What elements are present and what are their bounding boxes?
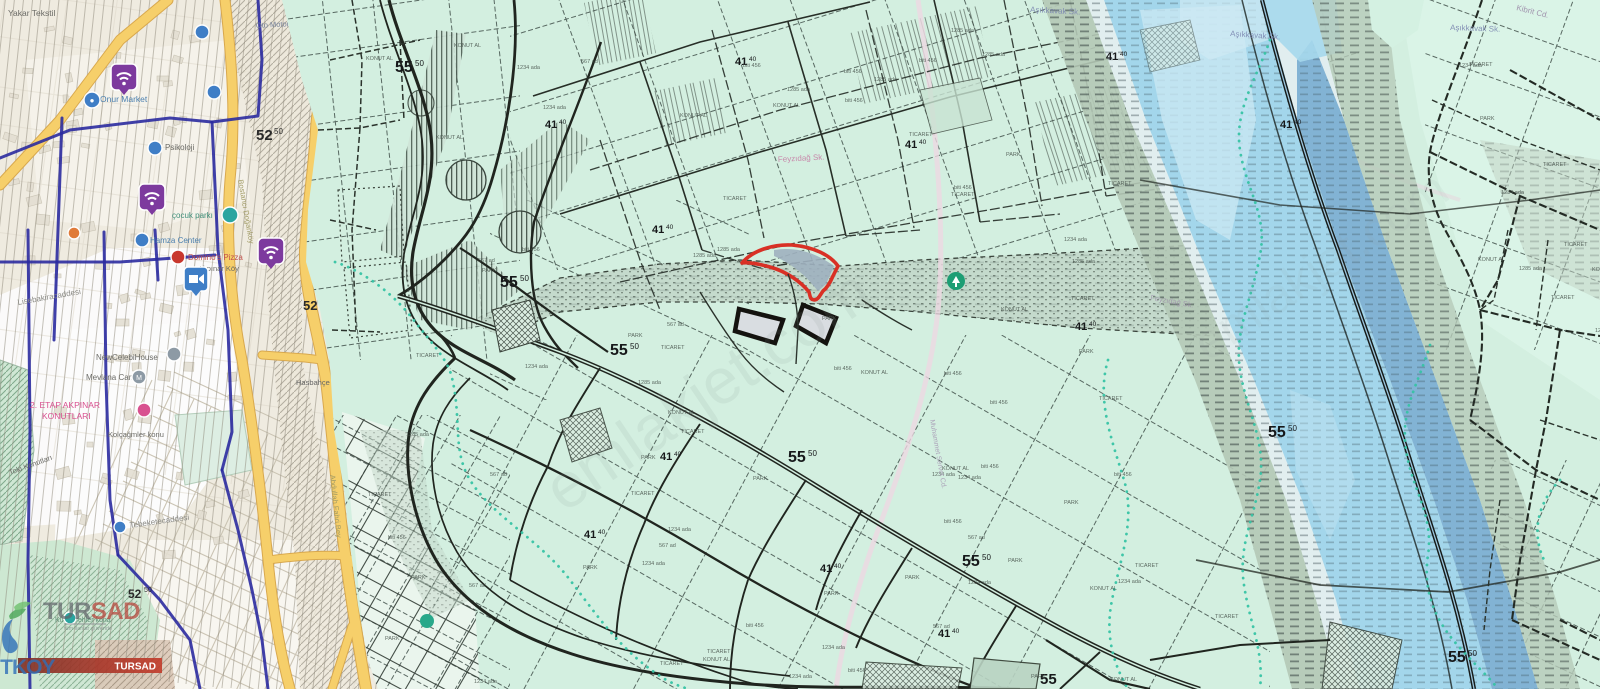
svg-text:TICARET: TICARET xyxy=(1543,162,1567,168)
svg-text:Aşıkkavak Sk.: Aşıkkavak Sk. xyxy=(1450,23,1501,34)
svg-text:çocuk parkı: çocuk parkı xyxy=(172,211,213,220)
svg-text:50: 50 xyxy=(415,59,424,68)
svg-text:PARK: PARK xyxy=(1008,558,1023,564)
svg-text:biti 456: biti 456 xyxy=(845,98,863,104)
svg-text:PARK: PARK xyxy=(824,591,839,597)
svg-text:40: 40 xyxy=(598,529,606,536)
svg-text:1285 ada: 1285 ada xyxy=(874,77,898,83)
svg-text:567 ad: 567 ad xyxy=(667,322,684,328)
svg-text:PARK: PARK xyxy=(1480,116,1495,122)
svg-text:40: 40 xyxy=(666,224,674,231)
svg-text:Domino's Pizza: Domino's Pizza xyxy=(188,253,243,262)
svg-text:biti 456: biti 456 xyxy=(1114,472,1132,478)
svg-text:KONUT AL: KONUT AL xyxy=(773,103,800,109)
svg-text:41: 41 xyxy=(820,563,832,575)
svg-text:1285 ada: 1285 ada xyxy=(406,432,430,438)
svg-text:1234 ada: 1234 ada xyxy=(1118,579,1142,585)
svg-text:1285 ada: 1285 ada xyxy=(982,52,1006,58)
svg-text:KONUT AL: KONUT AL xyxy=(1110,677,1137,683)
svg-text:biti 456: biti 456 xyxy=(522,247,540,253)
svg-text:1234 ada: 1234 ada xyxy=(642,561,666,567)
svg-text:41: 41 xyxy=(905,139,917,151)
svg-text:40: 40 xyxy=(1120,51,1128,58)
svg-text:1234 ada: 1234 ada xyxy=(968,580,992,586)
svg-text:1285 ada: 1285 ada xyxy=(717,247,741,253)
svg-text:52: 52 xyxy=(303,298,317,313)
svg-text:1285 ada: 1285 ada xyxy=(1519,266,1543,272)
svg-text:40: 40 xyxy=(1089,321,1097,328)
svg-text:TICARET: TICARET xyxy=(1099,396,1123,402)
svg-text:1285 ada: 1285 ada xyxy=(1595,328,1600,334)
svg-text:1285 ada: 1285 ada xyxy=(951,28,975,34)
svg-text:1234 ada: 1234 ada xyxy=(822,645,846,651)
svg-text:40: 40 xyxy=(559,119,567,126)
svg-text:UTKOY: UTKOY xyxy=(0,656,55,679)
svg-text:1234 ada: 1234 ada xyxy=(474,679,498,685)
svg-text:KONUT AL: KONUT AL xyxy=(942,466,969,472)
svg-text:50: 50 xyxy=(1288,424,1297,433)
svg-text:41: 41 xyxy=(1075,321,1087,333)
svg-text:55: 55 xyxy=(500,274,518,291)
svg-text:PARK: PARK xyxy=(753,476,768,482)
svg-text:Hamza Center: Hamza Center xyxy=(150,236,202,245)
svg-text:KONUTLARI: KONUTLARI xyxy=(42,411,91,421)
svg-text:1234 ada: 1234 ada xyxy=(543,105,567,111)
svg-text:PARK: PARK xyxy=(385,636,400,642)
svg-text:PARK: PARK xyxy=(411,575,426,581)
svg-text:1285 ada: 1285 ada xyxy=(1072,259,1096,265)
svg-text:biti 456: biti 456 xyxy=(848,668,866,674)
svg-text:TICARET: TICARET xyxy=(1071,296,1095,302)
svg-text:TICARET: TICARET xyxy=(660,661,684,667)
svg-text:55: 55 xyxy=(788,449,806,466)
svg-text:55: 55 xyxy=(610,342,628,359)
svg-text:567 ad: 567 ad xyxy=(469,583,486,589)
svg-text:1234 ada: 1234 ada xyxy=(789,674,813,680)
svg-text:TICARET: TICARET xyxy=(416,353,440,359)
svg-text:M: M xyxy=(136,375,142,382)
svg-text:Psikoloji: Psikoloji xyxy=(165,143,195,152)
svg-text:1234 ada: 1234 ada xyxy=(1064,237,1088,243)
svg-text:tüm ilanlar güvende: tüm ilanlar güvende xyxy=(64,626,112,632)
svg-text:biti 456: biti 456 xyxy=(990,400,1008,406)
svg-text:KONUT AL: KONUT AL xyxy=(1592,267,1600,273)
svg-text:KONUT AL: KONUT AL xyxy=(436,135,463,141)
svg-text:PARK: PARK xyxy=(905,575,920,581)
svg-text:PARK: PARK xyxy=(1031,674,1046,680)
svg-text:1234 ada: 1234 ada xyxy=(958,475,982,481)
svg-text:biti 456: biti 456 xyxy=(944,371,962,377)
svg-text:TICARET: TICARET xyxy=(1108,181,1132,187)
svg-text:TICARET: TICARET xyxy=(1564,242,1588,248)
svg-text:40: 40 xyxy=(749,56,757,63)
svg-text:50: 50 xyxy=(1468,649,1477,658)
svg-text:40: 40 xyxy=(919,139,927,146)
svg-text:TICARET: TICARET xyxy=(661,345,685,351)
svg-text:41: 41 xyxy=(545,119,557,131)
svg-text:TURSAD: TURSAD xyxy=(114,662,156,673)
svg-text:TICARET: TICARET xyxy=(723,196,747,202)
svg-text:55: 55 xyxy=(962,553,980,570)
svg-text:TICARET: TICARET xyxy=(1215,614,1239,620)
svg-text:biti 456: biti 456 xyxy=(944,519,962,525)
svg-text:1234 ada: 1234 ada xyxy=(1501,190,1525,196)
svg-text:55: 55 xyxy=(1448,649,1466,666)
svg-text:41: 41 xyxy=(1106,51,1118,63)
svg-text:2. ETAP AKPINAR: 2. ETAP AKPINAR xyxy=(30,400,100,410)
svg-text:PARK: PARK xyxy=(583,565,598,571)
svg-text:567 ad: 567 ad xyxy=(490,472,507,478)
svg-text:41: 41 xyxy=(584,529,596,541)
svg-text:567 ad: 567 ad xyxy=(968,535,985,541)
svg-text:Yakar Tekstil: Yakar Tekstil xyxy=(8,8,56,18)
svg-text:Kolçağmler konu: Kolçağmler konu xyxy=(108,430,164,439)
svg-text:PARK: PARK xyxy=(1079,349,1094,355)
svg-text:41: 41 xyxy=(1280,119,1292,131)
svg-text:50: 50 xyxy=(144,587,152,594)
svg-text:KONUT AL: KONUT AL xyxy=(454,43,481,49)
svg-text:1234 ada: 1234 ada xyxy=(517,65,541,71)
svg-text:1234 ada: 1234 ada xyxy=(1459,63,1483,69)
svg-text:KONUT AL: KONUT AL xyxy=(1478,257,1505,263)
svg-text:NewCelebiHouse: NewCelebiHouse xyxy=(96,353,158,362)
svg-text:50: 50 xyxy=(630,342,639,351)
svg-text:TICARET: TICARET xyxy=(707,649,731,655)
svg-text:biti 456: biti 456 xyxy=(919,58,937,64)
svg-text:50: 50 xyxy=(520,274,529,283)
svg-text:1234 ada: 1234 ada xyxy=(525,364,549,370)
svg-text:biti 456: biti 456 xyxy=(834,366,852,372)
svg-text:41: 41 xyxy=(652,224,664,236)
svg-text:Onur Market: Onur Market xyxy=(100,94,148,104)
svg-text:40: 40 xyxy=(1294,119,1302,126)
svg-text:40: 40 xyxy=(834,563,842,570)
svg-text:Hasbahçe: Hasbahçe xyxy=(296,378,330,387)
svg-text:biti 456: biti 456 xyxy=(743,63,761,69)
svg-text:TICARET: TICARET xyxy=(631,491,655,497)
svg-text:1285 ada: 1285 ada xyxy=(787,87,811,93)
svg-text:KONUT AL: KONUT AL xyxy=(703,657,730,663)
svg-text:1285 ada: 1285 ada xyxy=(693,253,717,259)
svg-text:biti 456: biti 456 xyxy=(388,535,406,541)
svg-text:TICARET: TICARET xyxy=(368,492,392,498)
svg-text:biti 456: biti 456 xyxy=(954,185,972,191)
svg-text:TICARET: TICARET xyxy=(951,192,975,198)
svg-text:55: 55 xyxy=(1268,424,1286,441)
svg-text:567 ad: 567 ad xyxy=(581,59,598,65)
svg-text:50: 50 xyxy=(808,449,817,458)
svg-text:biti 456: biti 456 xyxy=(981,464,999,470)
svg-text:TICARET: TICARET xyxy=(909,132,933,138)
svg-text:52: 52 xyxy=(256,127,273,144)
svg-text:PARK: PARK xyxy=(628,333,643,339)
svg-text:●: ● xyxy=(90,96,95,105)
svg-text:40: 40 xyxy=(952,628,960,635)
svg-text:50: 50 xyxy=(274,127,283,136)
svg-text:PARK: PARK xyxy=(1006,152,1021,158)
svg-text:PARK: PARK xyxy=(482,268,497,274)
svg-text:50: 50 xyxy=(982,553,991,562)
svg-text:TURSAD: TURSAD xyxy=(43,598,140,625)
svg-text:567 ad: 567 ad xyxy=(478,258,495,264)
svg-text:PARK: PARK xyxy=(1064,500,1079,506)
svg-text:KONUT AL: KONUT AL xyxy=(366,56,393,62)
svg-text:biti 456: biti 456 xyxy=(746,623,764,629)
svg-text:TICARET: TICARET xyxy=(1135,563,1159,569)
svg-text:KONUT AL: KONUT AL xyxy=(1001,307,1028,313)
svg-text:567 ad: 567 ad xyxy=(659,543,676,549)
svg-text:KONUT AL: KONUT AL xyxy=(861,370,888,376)
svg-text:567 ad: 567 ad xyxy=(933,624,950,630)
svg-text:1234 ada: 1234 ada xyxy=(668,527,692,533)
svg-text:Mevlana Camii: Mevlana Camii xyxy=(86,373,139,382)
svg-text:55: 55 xyxy=(395,59,413,76)
svg-text:KONUT AL: KONUT AL xyxy=(680,113,707,119)
svg-text:biti 456: biti 456 xyxy=(844,69,862,75)
svg-text:TICARET: TICARET xyxy=(1551,295,1575,301)
svg-text:KONUT AL: KONUT AL xyxy=(1090,586,1117,592)
